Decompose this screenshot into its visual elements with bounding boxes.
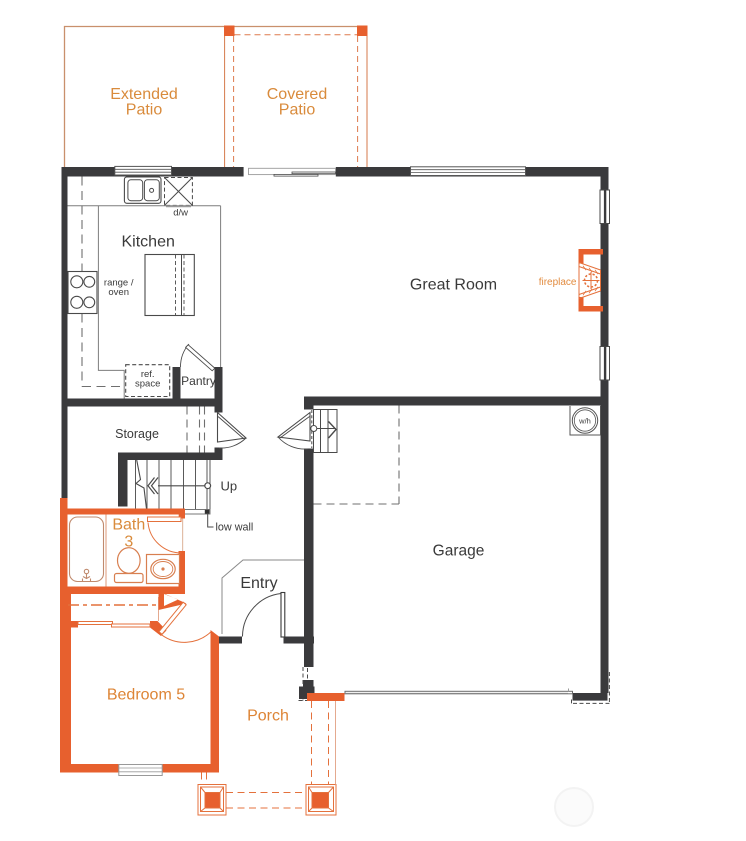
svg-text:Patio: Patio [126, 102, 163, 119]
svg-text:Entry: Entry [240, 575, 277, 592]
svg-text:Storage: Storage [115, 427, 159, 441]
svg-text:d/w: d/w [173, 208, 188, 219]
svg-text:Covered: Covered [267, 86, 327, 103]
svg-text:Extended: Extended [110, 86, 178, 103]
svg-text:Patio: Patio [279, 102, 316, 119]
svg-text:oven: oven [108, 287, 129, 298]
svg-text:Pantry: Pantry [181, 374, 216, 388]
svg-text:space: space [135, 379, 160, 390]
svg-text:Great Room: Great Room [410, 276, 497, 293]
svg-text:Bath: Bath [112, 517, 145, 534]
svg-text:fireplace: fireplace [539, 277, 577, 288]
svg-text:Bedroom 5: Bedroom 5 [107, 687, 185, 704]
svg-text:Porch: Porch [247, 708, 289, 725]
svg-text:low wall: low wall [216, 522, 254, 534]
svg-text:Up: Up [221, 479, 238, 494]
svg-text:w/h: w/h [578, 417, 591, 426]
svg-text:Kitchen: Kitchen [122, 234, 175, 251]
svg-text:Garage: Garage [433, 543, 485, 560]
